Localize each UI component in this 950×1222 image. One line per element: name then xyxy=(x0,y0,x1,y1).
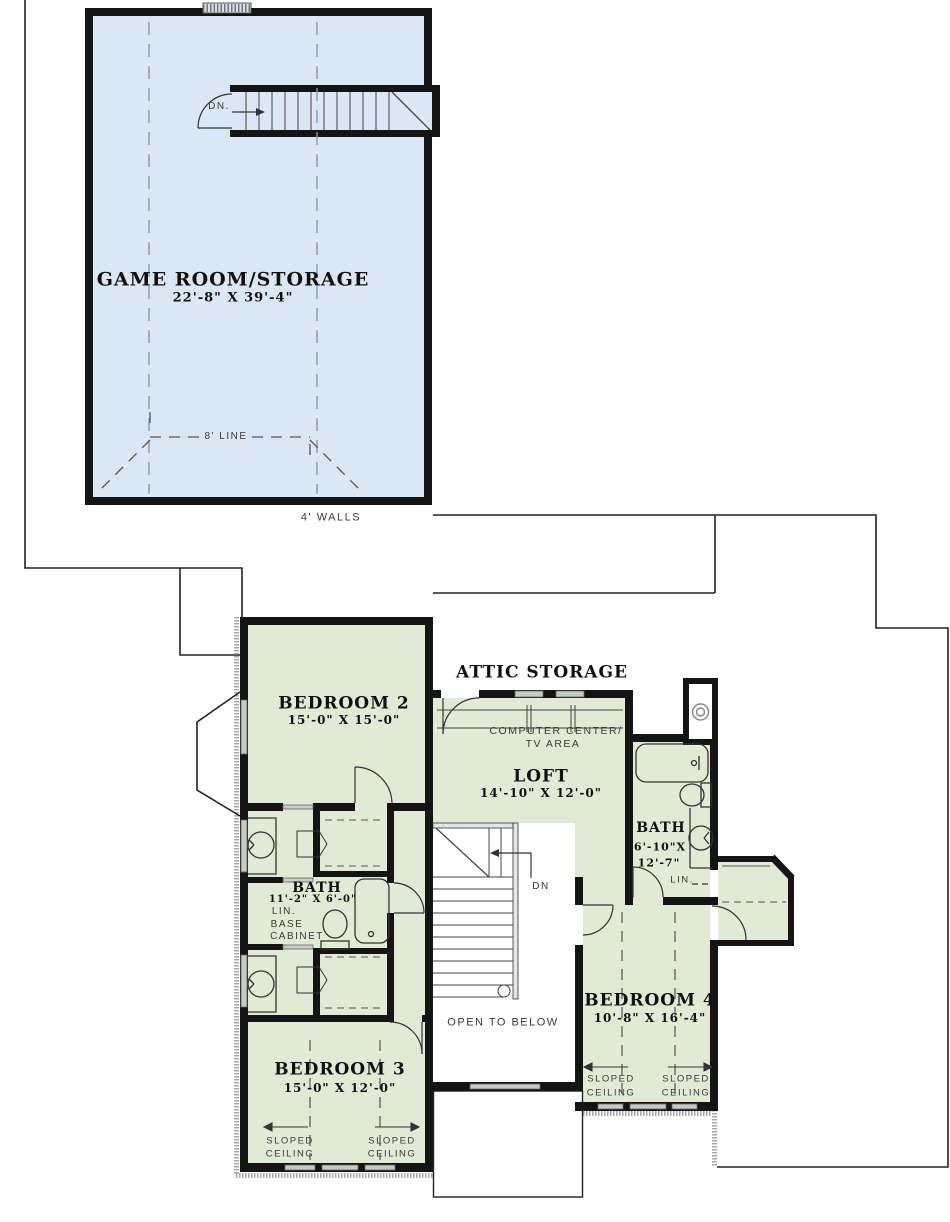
sloped-ceiling-label-b4-left-1: SLOPED xyxy=(587,1074,635,1084)
sloped-ceiling-label-b3-left-2: CEILING xyxy=(266,1149,315,1159)
dim-label-bath-right-2: 12'-7" xyxy=(638,858,681,869)
sloped-ceiling-label-b4-right-2: CEILING xyxy=(662,1088,711,1098)
open-to-below-label: OPEN TO BELOW xyxy=(447,1018,558,1029)
dim-label-bedroom-4: 10'-8" X 16'-4" xyxy=(594,1012,707,1024)
floor-plan-drawing xyxy=(0,0,950,1222)
dim-label-loft: 14'-10" X 12'-0" xyxy=(480,787,602,799)
base-cabinet-label-line1: LIN. xyxy=(272,907,296,917)
sloped-ceiling-label-b3-left-1: SLOPED xyxy=(266,1136,314,1146)
sloped-ceiling-label-b4-right-1: SLOPED xyxy=(662,1074,710,1084)
floor-plan: GAME ROOM/STORAGE 22'-8" X 39'-4" DN. 8'… xyxy=(0,0,950,1222)
room-label-attic-storage: ATTIC STORAGE xyxy=(456,665,628,682)
dim-label-game-room: 22'-8" X 39'-4" xyxy=(173,292,294,305)
sloped-ceiling-label-b4-left-2: CEILING xyxy=(587,1088,636,1098)
room-label-loft: LOFT xyxy=(513,769,568,786)
dim-label-bath-left: 11'-2" X 6'-0" xyxy=(269,895,357,905)
room-label-bedroom-4: BEDROOM 4 xyxy=(584,993,715,1010)
four-foot-walls-label: 4' WALLS xyxy=(301,513,361,524)
room-label-bedroom-3: BEDROOM 3 xyxy=(274,1062,405,1079)
room-label-bath-right: BATH xyxy=(636,821,686,835)
upper-stairs-floor xyxy=(238,92,432,130)
dim-label-bedroom-3: 15'-0" X 12'-0" xyxy=(284,1082,397,1094)
sloped-ceiling-label-b3-right-2: CEILING xyxy=(368,1149,417,1159)
room-label-bedroom-2: BEDROOM 2 xyxy=(278,696,409,713)
base-cabinet-label-line3: CABINET xyxy=(270,932,324,942)
computer-center-label-line1: COMPUTER CENTER/ xyxy=(489,726,622,737)
eight-foot-line-label: 8' LINE xyxy=(205,432,248,442)
dn-label-upper: DN. xyxy=(208,102,230,112)
bottom-dormer-outline xyxy=(434,1091,583,1197)
room-label-game-room: GAME ROOM/STORAGE xyxy=(97,271,370,290)
dim-label-bath-right-1: 6'-10"X xyxy=(634,842,686,853)
computer-center-label-line2: TV AREA xyxy=(526,739,581,750)
dn-label-lower: DN xyxy=(532,882,549,892)
sloped-ceiling-label-b3-right-1: SLOPED xyxy=(368,1136,416,1146)
base-cabinet-label-line2: BASE xyxy=(271,920,304,930)
linen-label-right: LIN. xyxy=(670,875,693,885)
room-label-bath-left: BATH xyxy=(292,881,342,895)
dim-label-bedroom-2: 15'-0" X 15'-0" xyxy=(288,714,401,726)
bay-window-outline xyxy=(197,692,240,816)
